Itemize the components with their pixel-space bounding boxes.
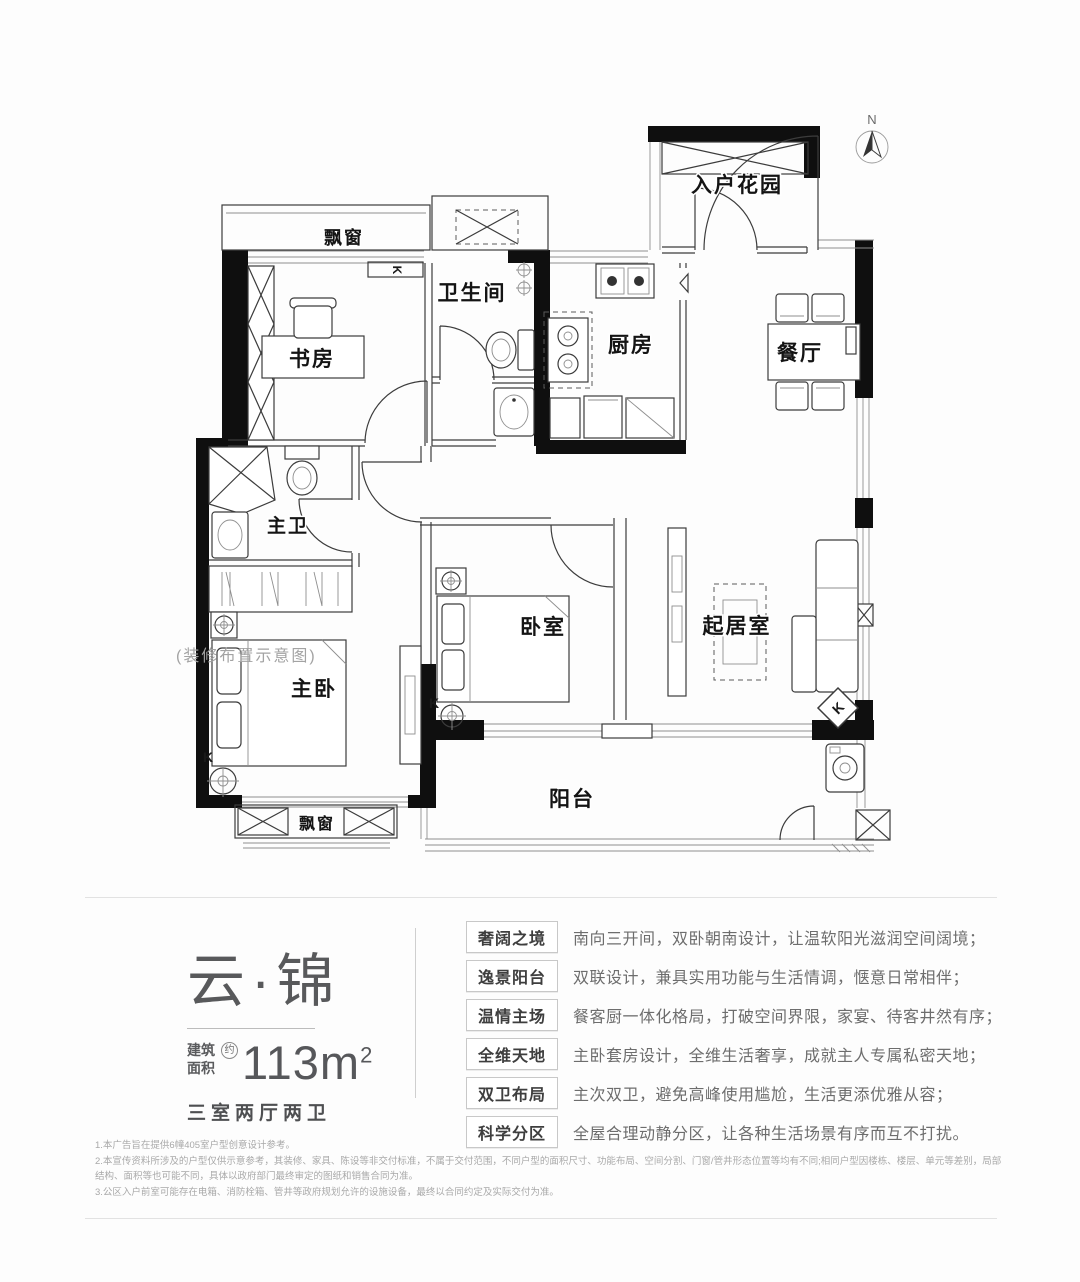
area-number: 113m xyxy=(242,1036,360,1089)
bay-window-top-label: 飘窗 xyxy=(324,227,364,248)
dining-room: 餐厅 xyxy=(768,294,860,410)
floor-plan: 飘窗 K 书房 卫生间 xyxy=(0,0,1080,890)
bedroom: K 卧室 xyxy=(429,568,569,730)
entry-garden-label: 入户花园 xyxy=(691,173,783,197)
feature-tag: 全维天地 xyxy=(466,1038,558,1070)
feature-desc: 主卧套房设计，全维生活奢享，成就主人专属私密天地； xyxy=(573,1042,986,1066)
balcony-label: 阳台 xyxy=(549,787,595,811)
kitchen-label: 厨房 xyxy=(608,333,654,357)
feature-desc: 南向三开间，双卧朝南设计，让温软阳光滋润空间阔境； xyxy=(573,925,986,949)
unit-title: 云·锦 xyxy=(187,934,427,1018)
feature-row: 全维天地 主卧套房设计，全维生活奢享，成就主人专属私密天地； xyxy=(466,1038,1002,1070)
area-value: 113m2 xyxy=(242,1041,373,1086)
area-prefix-line1: 建筑 xyxy=(187,1041,215,1059)
bottom-divider xyxy=(85,1218,997,1219)
master-bedroom: K 主卧 xyxy=(203,566,421,797)
disclaimer-line: 2.本宣传资料所涉及的户型仅供示意参考，其装修、家具、陈设等非交付标准，不属于交… xyxy=(95,1154,1003,1185)
feature-list: 奢阔之境 南向三开间，双卧朝南设计，让温软阳光滋润空间阔境； 逸景阳台 双联设计… xyxy=(466,921,1002,1155)
bay-window-top: 飘窗 xyxy=(222,205,430,250)
living-room-label: 起居室 xyxy=(702,614,772,638)
kitchen: 厨房 xyxy=(544,264,674,438)
compass-n-label: N xyxy=(867,112,876,127)
feature-row: 逸景阳台 双联设计，兼具实用功能与生活情调，惬意日常相伴； xyxy=(466,960,1002,992)
bathroom: 卫生间 xyxy=(432,196,548,436)
study-room: K 书房 xyxy=(248,262,423,440)
north-compass-icon: N xyxy=(856,112,888,163)
floor-plan-page: 飘窗 K 书房 卫生间 xyxy=(0,0,1080,1282)
feature-tag: 温情主场 xyxy=(466,999,558,1031)
layout-text: 三室两厅两卫 xyxy=(187,1098,427,1125)
study-label: 书房 xyxy=(289,347,335,371)
approx-circle-icon: 约 xyxy=(221,1042,238,1059)
title-underline xyxy=(187,1028,315,1029)
feature-tag: 双卫布局 xyxy=(466,1077,558,1109)
feature-row: 奢阔之境 南向三开间，双卧朝南设计，让温软阳光滋润空间阔境； xyxy=(466,921,1002,953)
unit-summary: 云·锦 建筑 面积 约 113m2 三室两厅两卫 xyxy=(187,934,427,1125)
feature-desc: 主次双卫，避免高峰使用尴尬，生活更添优雅从容； xyxy=(573,1081,953,1105)
plan-watermark: (装修布置示意图) xyxy=(176,646,317,665)
master-bedroom-label: 主卧 xyxy=(291,678,337,701)
disclaimer-block: 1.本广告旨在提供6幢405室户型创意设计参考。 2.本宣传资料所涉及的户型仅供… xyxy=(95,1138,1003,1201)
bay-window-bottom: 飘窗 xyxy=(235,805,397,848)
living-room: K 起居室 xyxy=(668,528,858,728)
ac-marker: K xyxy=(203,749,213,765)
balcony: 阳台 xyxy=(484,724,890,852)
feature-tag: 逸景阳台 xyxy=(466,960,558,992)
bathroom-label: 卫生间 xyxy=(438,281,507,305)
feature-row: 双卫布局 主次双卫，避免高峰使用尴尬，生活更添优雅从容； xyxy=(466,1077,1002,1109)
entry-garden: 入户花园 xyxy=(662,142,808,197)
feature-desc: 餐客厨一体化格局，打破空间界限，家宴、待客井然有序； xyxy=(573,1003,1002,1027)
area-prefix: 建筑 面积 xyxy=(187,1041,215,1077)
feature-desc: 双联设计，兼具实用功能与生活情调，惬意日常相伴； xyxy=(573,964,969,988)
floor-plan-svg: 飘窗 K 书房 卫生间 xyxy=(0,0,1080,890)
bedroom-label: 卧室 xyxy=(520,615,566,639)
vertical-divider xyxy=(415,928,416,1098)
disclaimer-line: 1.本广告旨在提供6幢405室户型创意设计参考。 xyxy=(95,1138,1003,1154)
feature-tag: 奢阔之境 xyxy=(466,921,558,953)
master-bath-label: 主卫 xyxy=(267,515,309,537)
area-superscript: 2 xyxy=(360,1042,373,1067)
area-row: 建筑 面积 约 113m2 xyxy=(187,1041,427,1086)
top-divider xyxy=(85,897,997,898)
dining-label: 餐厅 xyxy=(777,341,823,365)
doors xyxy=(299,136,818,840)
feature-row: 温情主场 餐客厨一体化格局，打破空间界限，家宴、待客井然有序； xyxy=(466,999,1002,1031)
disclaimer-line: 3.公区入户前室可能存在电箱、消防栓箱、管井等政府规划允许的设施设备，最终以合同… xyxy=(95,1185,1003,1201)
bay-window-bottom-label: 飘窗 xyxy=(299,814,335,833)
area-prefix-line2: 面积 xyxy=(187,1059,215,1077)
ac-marker: K xyxy=(390,266,404,275)
ac-marker: K xyxy=(429,695,439,711)
master-bath: 主卫 xyxy=(209,446,319,558)
